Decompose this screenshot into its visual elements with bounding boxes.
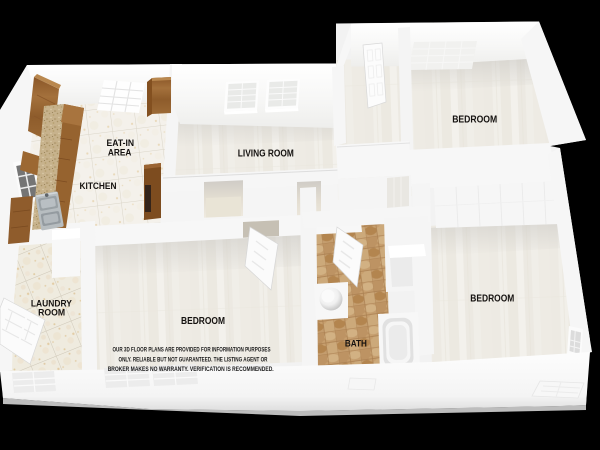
svg-text:BEDROOM: BEDROOM xyxy=(181,316,225,327)
svg-text:BEDROOM: BEDROOM xyxy=(470,294,514,305)
svg-text:AREA: AREA xyxy=(108,148,132,158)
svg-text:EAT-IN: EAT-IN xyxy=(107,138,135,148)
svg-text:LIVING ROOM: LIVING ROOM xyxy=(238,149,294,160)
svg-text:ONLY. RELIABLE BUT NOT GUARANT: ONLY. RELIABLE BUT NOT GUARANTEED. THE L… xyxy=(119,357,269,363)
svg-text:BROKER MAKES NO WARRANTY. VERI: BROKER MAKES NO WARRANTY. VERIFICATION I… xyxy=(108,367,274,373)
svg-text:OUR 3D FLOOR PLANS ARE PROVIDE: OUR 3D FLOOR PLANS ARE PROVIDED FOR INFO… xyxy=(113,348,271,354)
svg-text:KITCHEN: KITCHEN xyxy=(80,181,117,191)
svg-text:BEDROOM: BEDROOM xyxy=(452,115,497,126)
svg-text:BATH: BATH xyxy=(345,338,367,348)
svg-text:ROOM: ROOM xyxy=(38,308,65,319)
